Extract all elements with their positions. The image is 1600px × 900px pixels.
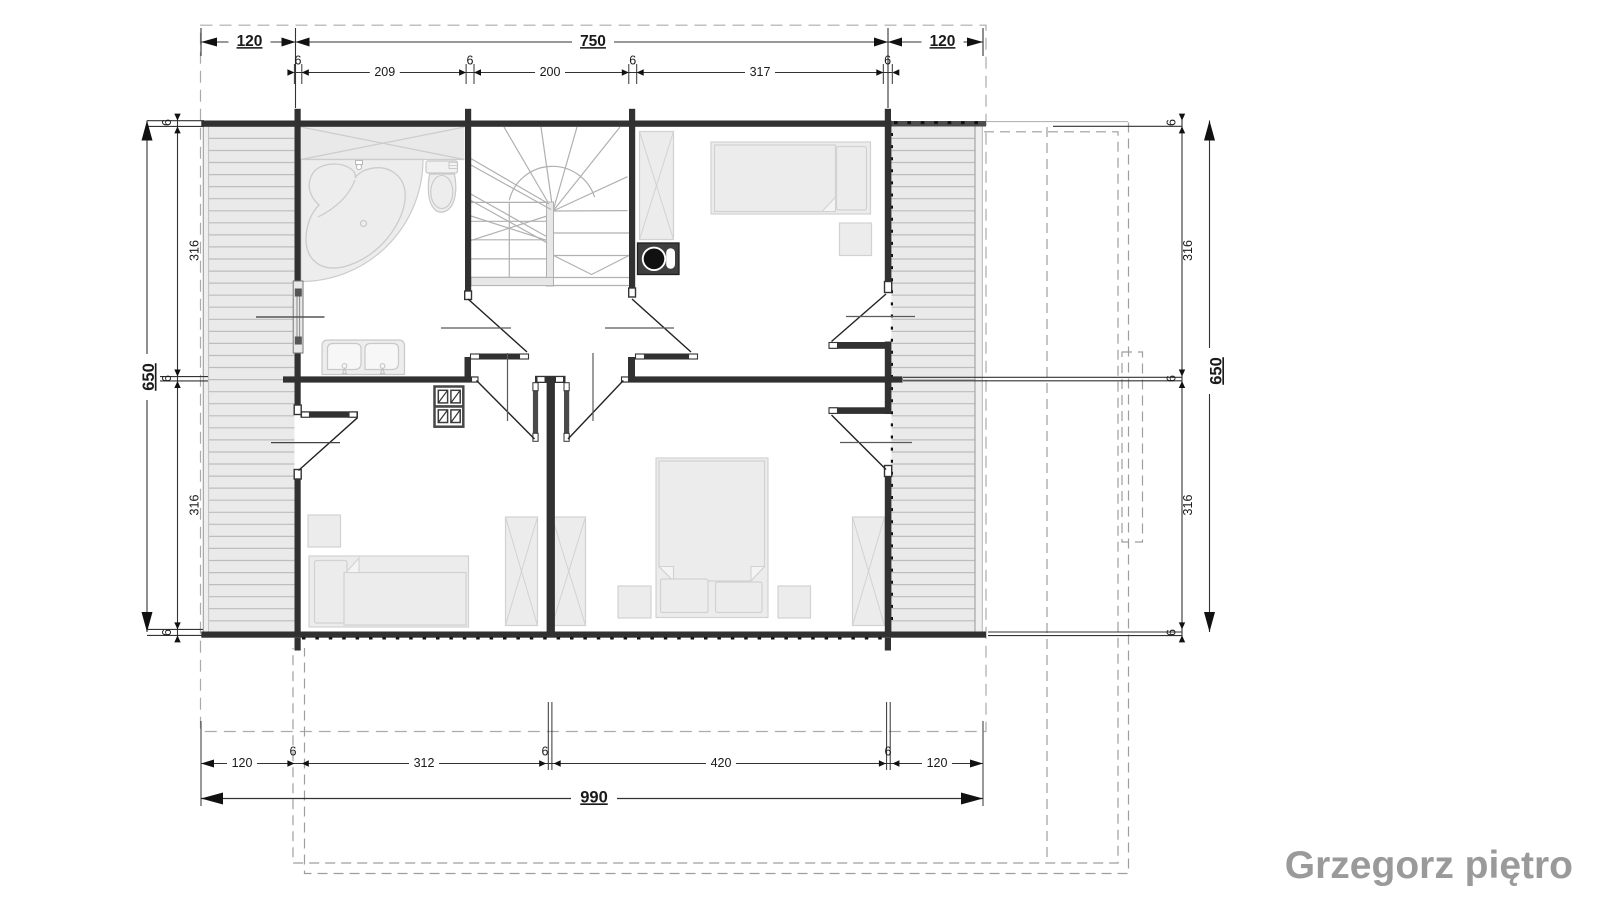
svg-text:316: 316 (187, 240, 201, 261)
svg-text:6: 6 (542, 744, 549, 758)
svg-text:6: 6 (1164, 629, 1178, 636)
svg-text:6: 6 (629, 53, 636, 67)
svg-text:6: 6 (885, 744, 892, 758)
svg-text:420: 420 (711, 756, 732, 770)
svg-text:120: 120 (237, 33, 263, 50)
svg-text:650: 650 (1207, 357, 1225, 385)
svg-text:200: 200 (540, 65, 561, 79)
svg-text:750: 750 (580, 33, 606, 50)
svg-text:650: 650 (140, 363, 158, 391)
svg-text:6: 6 (160, 375, 174, 382)
svg-text:990: 990 (580, 788, 608, 806)
svg-text:312: 312 (414, 756, 435, 770)
svg-text:316: 316 (187, 495, 201, 516)
svg-text:Grzegorz piętro: Grzegorz piętro (1285, 844, 1573, 887)
svg-text:6: 6 (1164, 375, 1178, 382)
svg-text:209: 209 (374, 65, 395, 79)
svg-text:6: 6 (160, 629, 174, 636)
svg-text:316: 316 (1181, 240, 1195, 261)
svg-text:316: 316 (1181, 495, 1195, 516)
svg-text:120: 120 (927, 756, 948, 770)
svg-text:6: 6 (1164, 119, 1178, 126)
svg-text:6: 6 (160, 119, 174, 126)
svg-text:6: 6 (290, 744, 297, 758)
svg-text:6: 6 (884, 53, 891, 67)
svg-text:317: 317 (750, 65, 771, 79)
svg-text:120: 120 (232, 756, 253, 770)
svg-text:120: 120 (930, 33, 956, 50)
svg-text:6: 6 (295, 53, 302, 67)
svg-text:6: 6 (467, 53, 474, 67)
